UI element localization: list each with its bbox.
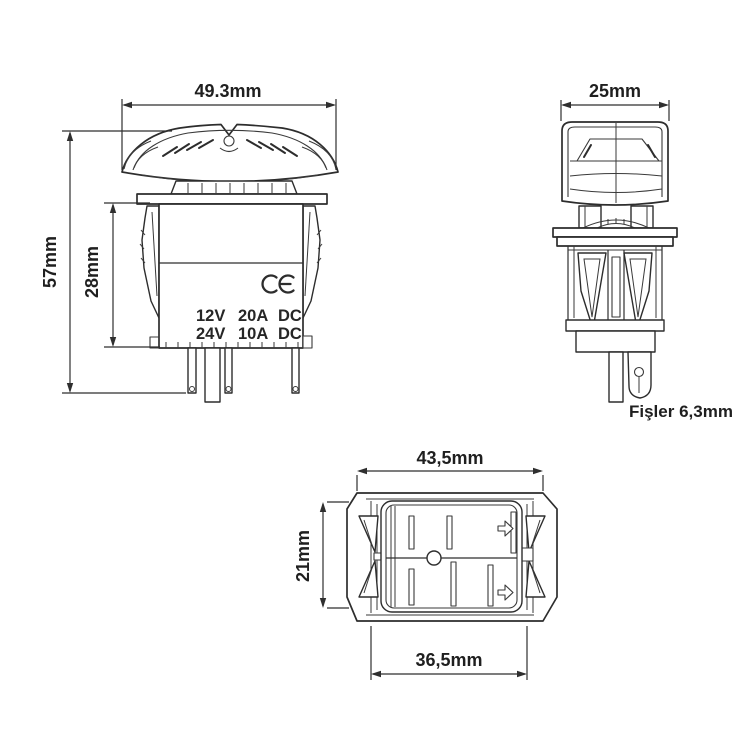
body-right-foot [303,336,312,348]
rating-text: 12V 20A DC 24V 10A DC [196,307,302,343]
rating-amps-2: 10A [238,325,268,343]
hinge-strip [171,181,297,194]
side-bezel-flange-upper [553,228,677,237]
dim-bottom-height: 21mm [293,502,349,608]
rocker-notch-knob [224,136,234,146]
dim-bottom-width: 43,5mm [357,448,543,491]
side-base-block [576,331,655,352]
rocker-switch-drawing: 12V 20A DC 24V 10A DC 49.3mm [0,0,750,750]
right-mounting-clip [303,206,322,318]
bottom-view: 43,5mm 21mm 36,5mm [293,448,557,680]
side-width-label: 25mm [589,81,641,101]
technical-drawing-page: 12V 20A DC 24V 10A DC 49.3mm [0,0,750,750]
side-terminals [609,352,651,402]
rating-voltage-2: 24V [196,325,225,343]
side-base-bar [566,320,664,331]
rating-voltage-1: 12V [196,307,225,325]
bottom-height-label: 21mm [293,530,313,582]
side-lower-housing [568,246,662,329]
side-view: Fişler 6,3mm 25mm [553,81,733,421]
front-width-label: 49.3mm [194,81,261,101]
body-height-label: 28mm [82,246,102,298]
rating-type-2: DC [278,325,302,343]
front-view: 12V 20A DC 24V 10A DC 49.3mm [40,81,338,402]
dim-cutout-width: 36,5mm [371,626,527,680]
bottom-width-label: 43,5mm [416,448,483,468]
terminal-size-note: Fişler 6,3mm [629,402,733,421]
bezel-flange [137,194,327,204]
side-bezel-flange-lower [557,237,673,246]
body-left-foot [150,337,159,348]
side-pivot-mechanism [579,206,653,228]
left-mounting-clip [140,206,159,318]
front-height-label: 57mm [40,236,60,288]
rating-amps-1: 20A [238,307,268,325]
cutout-width-label: 36,5mm [415,650,482,670]
rating-type-1: DC [278,307,302,325]
bottom-pivot-hole [427,551,441,565]
front-terminals [188,348,299,402]
rocker-actuator [122,125,338,182]
dim-side-width: 25mm [561,81,669,121]
